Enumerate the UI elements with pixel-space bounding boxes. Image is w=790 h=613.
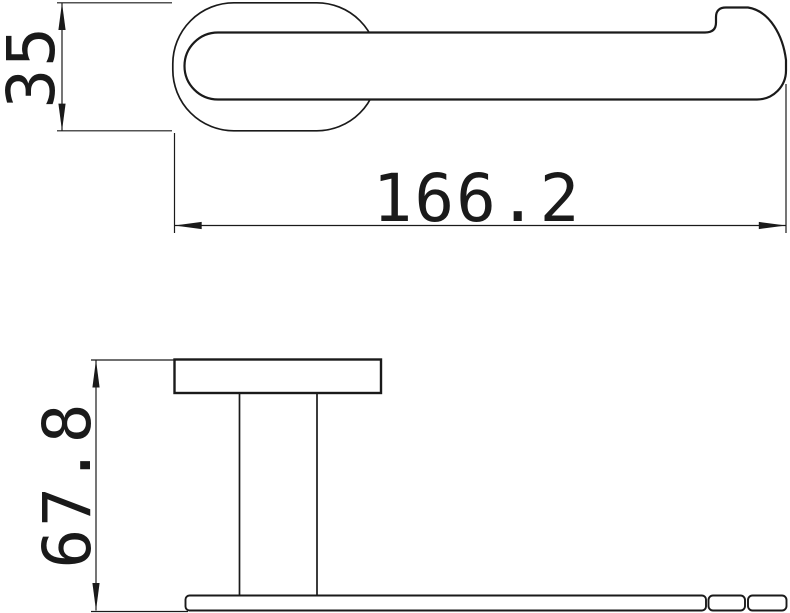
technical-drawing-canvas: 35 166.2 xyxy=(0,0,790,613)
dim-67-label: 67.8 xyxy=(29,402,106,569)
rail-end-segment xyxy=(748,596,787,611)
dimension-35: 35 xyxy=(0,3,172,131)
dim-35-label: 35 xyxy=(0,25,70,108)
dim-67-arrow-down-icon xyxy=(92,583,99,611)
side-view: 67.8 xyxy=(29,360,787,612)
dim-67-arrow-up-icon xyxy=(92,360,99,388)
dim-166-arrow-right-icon xyxy=(759,222,786,229)
rail-main-segment xyxy=(186,596,707,611)
top-view: 35 166.2 xyxy=(0,3,786,237)
dim-166-arrow-left-icon xyxy=(175,222,202,229)
wall-plate-outline xyxy=(175,360,382,394)
roll-bar-outline xyxy=(185,8,787,100)
dim-166-label: 166.2 xyxy=(373,160,582,237)
rail-middle-segment xyxy=(709,596,746,611)
dimension-166-2: 166.2 xyxy=(175,84,787,237)
dimension-67-8: 67.8 xyxy=(29,360,188,612)
dimension-drawing: 35 166.2 xyxy=(0,0,790,613)
